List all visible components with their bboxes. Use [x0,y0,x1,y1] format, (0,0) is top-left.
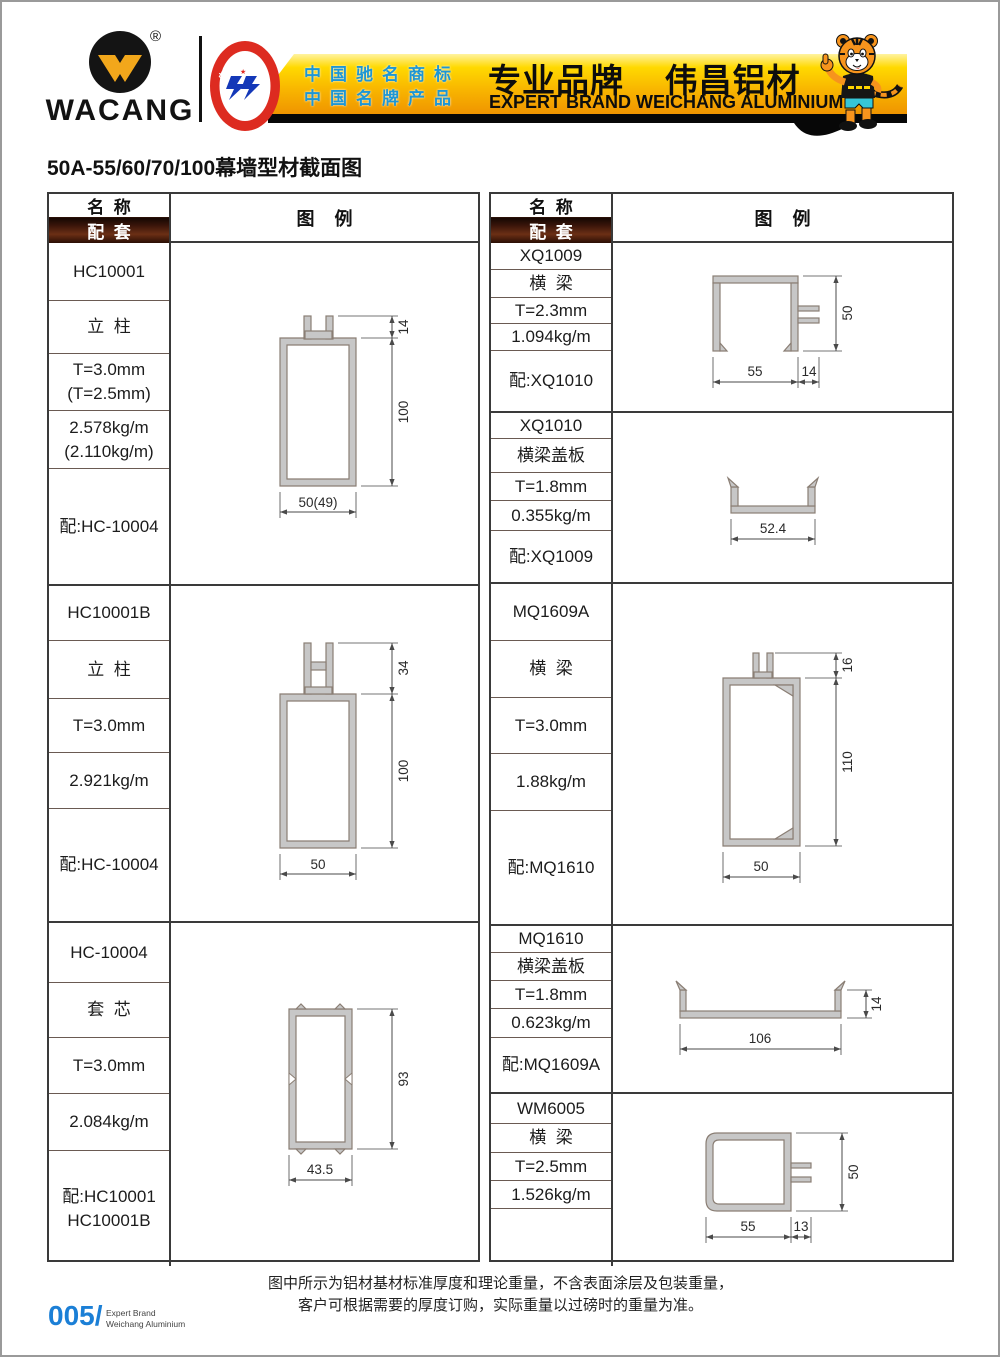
wacang-logo-icon [88,30,152,94]
dim-label: 106 [749,1031,772,1046]
dim-label: 14 [869,996,884,1012]
product-thickness: T=3.0mm(T=2.5mm) [49,354,169,411]
product-type: 横 梁 [491,641,611,698]
dim-label: 14 [396,319,411,335]
col-header-name: 名 称 [491,194,611,218]
china-top-brand-badge-icon: 中国名牌 CHINA TOP BRAND ★ [209,40,281,132]
product-block-mq1609a: MQ1609A 横 梁 T=3.0mm 1.88kg/m 配:MQ1610 [491,584,952,926]
dim-label: 50(49) [298,495,337,510]
dim-label: 100 [396,760,411,783]
product-match: 配:MQ1609A [491,1038,611,1092]
product-code: HC10001 [49,243,169,301]
col-header-legend: 图 例 [171,194,478,241]
banner-tagline-2: 中国名牌产品 [304,84,460,109]
product-block-hc-10004: HC-10004 套 芯 T=3.0mm 2.084kg/m 配:HC10001… [49,923,478,1266]
product-weight: 2.921kg/m [49,753,169,809]
product-match: 配:XQ1009 [491,531,611,582]
diagram-hc-10004: 93 43.5 [171,923,478,1266]
product-thickness: T=1.8mm [491,473,611,501]
header-divider [199,36,202,122]
product-type: 立 柱 [49,301,169,354]
registered-mark: ® [150,28,161,45]
product-thickness: T=3.0mm [49,1038,169,1094]
col-header-legend: 图 例 [613,194,952,241]
profile-shape [713,276,819,351]
diagram-wm6005: 50 55 13 [613,1094,952,1266]
product-match: 配:HC10001HC10001B [49,1151,169,1266]
diagram-hc10001b: 34 100 50 [171,586,478,921]
product-weight: 2.084kg/m [49,1094,169,1151]
dim-label: 13 [793,1219,808,1234]
dim-label: 34 [396,660,411,676]
tiger-mascot-icon [812,28,904,132]
product-code: MQ1610 [491,926,611,953]
product-type: 横梁盖板 [491,439,611,473]
page-number-subtext: Expert Brand Weichang Aluminium [106,1308,185,1330]
product-block-wm6005: WM6005 横 梁 T=2.5mm 1.526kg/m [491,1094,952,1266]
product-weight: 1.094kg/m [491,324,611,351]
product-code: WM6005 [491,1094,611,1124]
product-code: XQ1010 [491,413,611,439]
product-code: XQ1009 [491,243,611,270]
product-block-mq1610: MQ1610 横梁盖板 T=1.8mm 0.623kg/m 配:MQ1609A [491,926,952,1094]
product-type: 横 梁 [491,1124,611,1153]
dim-label: 100 [396,401,411,424]
product-type: 套 芯 [49,983,169,1038]
dim-label: 14 [801,364,817,379]
banner-title-en: EXPERT BRAND WEICHANG ALUMINIUM [489,92,843,113]
diagram-xq1009: 50 55 14 [613,243,952,411]
gold-banner: 中国驰名商标 中国名牌产品 专业品牌 伟昌铝材 EXPERT BRAND WEI… [258,54,907,115]
dim-label: 55 [747,364,762,379]
profile-shape [706,1133,811,1211]
dimensions: 50 55 14 [713,276,855,388]
dim-label: 50 [846,1164,861,1179]
product-match: 配:MQ1610 [491,811,611,924]
product-thickness: T=2.5mm [491,1153,611,1181]
dimensions: 106 14 [680,990,884,1055]
product-match: 配:HC-10004 [49,809,169,921]
dim-label: 52.4 [760,521,787,536]
product-block-hc10001: HC10001 立 柱 T=3.0mm(T=2.5mm) 2.578kg/m(2… [49,243,478,586]
col-header-match: 配 套 [49,218,169,243]
product-match: 配:XQ1010 [491,351,611,411]
dimensions: 14 100 50(49) [280,316,411,518]
right-profile-table: 名 称 配 套 图 例 XQ1009 横 梁 T=2.3mm 1.094kg/m… [489,192,954,1262]
dim-label: 50 [753,859,768,874]
profile-shape [280,316,356,486]
diagram-hc10001: 14 100 50(49) [171,243,478,584]
dim-label: 50 [310,857,325,872]
product-type: 立 柱 [49,641,169,699]
col-header-match: 配 套 [491,218,611,243]
product-weight: 1.88kg/m [491,754,611,811]
dim-label: 16 [840,657,855,672]
dim-label: 50 [840,305,855,320]
profile-shape [280,643,356,848]
product-thickness: T=3.0mm [491,698,611,754]
page-number: 005/ [48,1300,103,1332]
product-code: HC10001B [49,586,169,641]
product-match: 配:HC-10004 [49,469,169,584]
product-match [491,1209,611,1266]
product-type: 横梁盖板 [491,953,611,981]
product-code: MQ1609A [491,584,611,641]
dim-label: 93 [396,1071,411,1086]
col-header-name: 名 称 [49,194,169,218]
dimensions: 52.4 [731,519,815,545]
profile-shape [728,478,818,513]
diagram-mq1609a: 16 110 50 [613,584,952,924]
banner-tagline-1: 中国驰名商标 [304,60,460,85]
brand-wordmark: WACANG [42,94,198,128]
footer-note-1: 图中所示为铝材基材标准厚度和理论重量，不含表面涂层及包装重量， [47,1272,954,1293]
left-profile-table: 名 称 配 套 图 例 HC10001 立 柱 T=3.0mm(T=2.5mm)… [47,192,480,1262]
profile-shape [289,1004,352,1154]
svg-text:★: ★ [240,68,246,76]
diagram-mq1610: 106 14 [613,926,952,1092]
product-code: HC-10004 [49,923,169,983]
product-thickness: T=3.0mm [49,699,169,753]
product-weight: 0.623kg/m [491,1009,611,1038]
diagram-xq1010: 52.4 [613,413,952,582]
product-block-xq1009: XQ1009 横 梁 T=2.3mm 1.094kg/m 配:XQ1010 [491,243,952,413]
dim-label: 55 [740,1219,755,1234]
product-type: 横 梁 [491,270,611,298]
page-title: 50A-55/60/70/100幕墙型材截面图 [47,152,362,182]
product-thickness: T=2.3mm [491,298,611,324]
profile-shape [676,981,845,1018]
left-table-header: 名 称 配 套 图 例 [49,194,478,243]
product-weight: 1.526kg/m [491,1181,611,1209]
product-block-hc10001b: HC10001B 立 柱 T=3.0mm 2.921kg/m 配:HC-1000… [49,586,478,923]
product-block-xq1010: XQ1010 横梁盖板 T=1.8mm 0.355kg/m 配:XQ1009 [491,413,952,584]
right-table-header: 名 称 配 套 图 例 [491,194,952,243]
dim-label: 110 [840,751,855,773]
product-weight: 0.355kg/m [491,501,611,531]
product-weight: 2.578kg/m(2.110kg/m) [49,411,169,469]
catalog-page: ® WACANG 中国驰名商标 中国名牌产品 专业品牌 伟昌铝材 EXPERT … [0,0,1000,1357]
product-thickness: T=1.8mm [491,981,611,1009]
profile-shape [723,653,800,846]
dim-label: 43.5 [307,1162,333,1177]
